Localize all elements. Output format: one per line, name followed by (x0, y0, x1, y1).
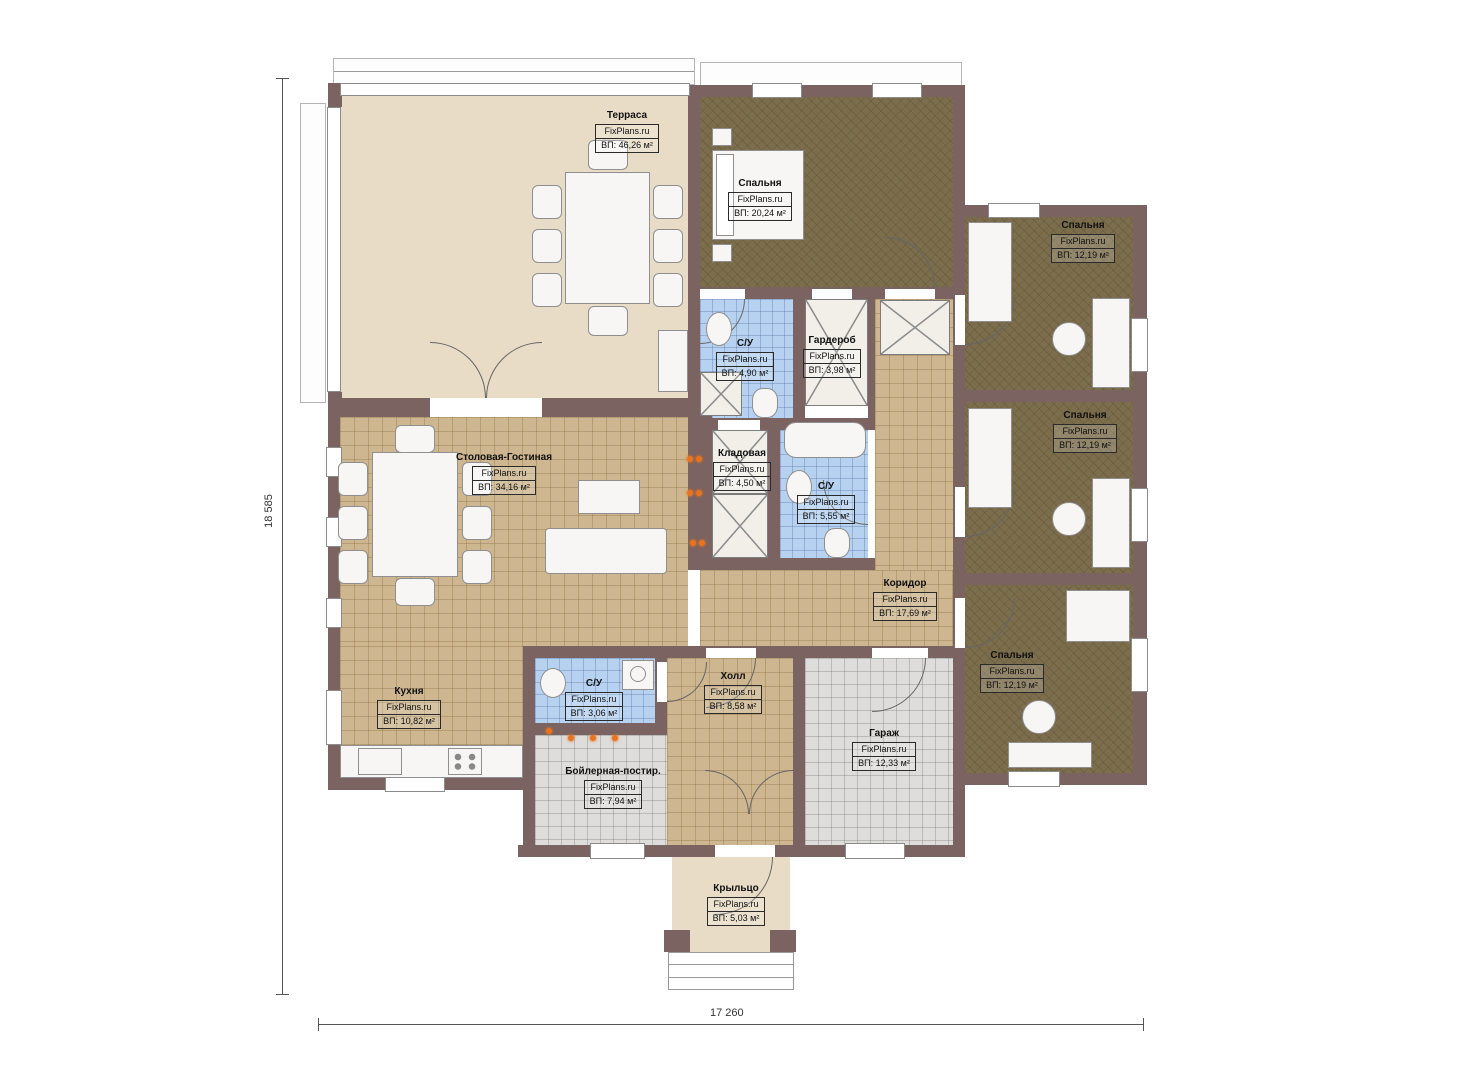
chair (338, 462, 368, 496)
area-label: ВП: 17,69 м² (874, 606, 936, 620)
bed (968, 408, 1012, 508)
stove (448, 748, 482, 775)
wall (793, 646, 805, 857)
brand-label: FixPlans.ru (378, 701, 440, 714)
desk-chair (1052, 502, 1086, 536)
brand-label: FixPlans.ru (596, 125, 658, 138)
chair (532, 229, 562, 263)
chair (653, 273, 683, 307)
room-info-box: FixPlans.ru ВП: 10,82 м² (377, 700, 441, 729)
door-gap (718, 420, 760, 430)
dimension-tick (318, 1018, 319, 1031)
area-label: ВП: 12,19 м² (1052, 248, 1114, 262)
area-label: ВП: 8,58 м² (705, 699, 762, 713)
room-name: Крыльцо (681, 883, 791, 895)
brand-label: FixPlans.ru (981, 665, 1043, 678)
brand-label: FixPlans.ru (708, 898, 765, 911)
window (590, 843, 645, 859)
nightstand (712, 128, 732, 146)
window (1131, 638, 1148, 692)
chair (395, 425, 435, 453)
boiler-burner-dot (546, 728, 552, 734)
room-label-bedroom-mid-right: Спальня FixPlans.ru ВП: 12,19 м² (1030, 410, 1140, 453)
chair (462, 550, 492, 584)
brand-label: FixPlans.ru (729, 193, 791, 206)
room-label-terrace: Терраса FixPlans.ru ВП: 46,26 м² (572, 110, 682, 153)
room-info-box: FixPlans.ru ВП: 8,58 м² (704, 685, 763, 714)
room-info-box: FixPlans.ru ВП: 12,19 м² (980, 664, 1044, 693)
room-label-bathroom-small: С/У FixPlans.ru ВП: 3,06 м² (539, 678, 649, 721)
room-label-garage: Гараж FixPlans.ru ВП: 12,33 м² (829, 728, 939, 771)
porch-step-line (669, 977, 793, 978)
room-label-storage: Кладовая FixPlans.ru ВП: 4,50 м² (687, 448, 797, 491)
chair (338, 550, 368, 584)
fireplace-dot (690, 540, 696, 546)
dimension-line-horizontal (318, 1024, 1143, 1025)
brand-label: FixPlans.ru (853, 743, 915, 756)
terrace-table (565, 172, 650, 304)
room-name: Спальня (957, 650, 1067, 662)
dimension-tick (276, 994, 289, 995)
room-info-box: FixPlans.ru ВП: 12,33 м² (852, 742, 916, 771)
dimension-label-width: 17 260 (710, 1007, 744, 1019)
window (326, 598, 342, 628)
room-label-wardrobe: Гардероб FixPlans.ru ВП: 3,98 м² (777, 335, 887, 378)
chair (338, 506, 368, 540)
area-label: ВП: 3,98 м² (804, 363, 861, 377)
porch-pier-right (770, 930, 796, 952)
chair (395, 578, 435, 606)
roof-eave-top (700, 62, 962, 86)
wall (953, 85, 965, 857)
room-label-bedroom-top-right: Спальня FixPlans.ru ВП: 12,19 м² (1028, 220, 1138, 263)
toilet (824, 528, 850, 558)
room-label-hall: Холл FixPlans.ru ВП: 8,58 м² (678, 671, 788, 714)
porch-steps (668, 952, 794, 990)
room-label-porch: Крыльцо FixPlans.ru ВП: 5,03 м² (681, 883, 791, 926)
brand-label: FixPlans.ru (585, 781, 642, 794)
room-name: Спальня (1028, 220, 1138, 232)
terrace-glass-left (327, 107, 341, 392)
room-info-box: FixPlans.ru ВП: 34,16 м² (472, 466, 536, 495)
chair (588, 306, 628, 336)
dimension-tick (276, 78, 289, 79)
brand-label: FixPlans.ru (1054, 425, 1116, 438)
room-name: Гардероб (777, 335, 887, 347)
room-name: Бойлерная-постир. (558, 766, 668, 778)
brand-label: FixPlans.ru (473, 467, 535, 480)
toilet (752, 388, 778, 418)
room-name: Спальня (1030, 410, 1140, 422)
brand-label: FixPlans.ru (798, 496, 855, 509)
terrace-awning-left (300, 103, 326, 403)
awning-fold-line (334, 71, 694, 72)
area-label: ВП: 12,19 м² (1054, 438, 1116, 452)
nightstand (712, 244, 732, 262)
brand-label: FixPlans.ru (1052, 235, 1114, 248)
wall (953, 390, 1145, 402)
desk (1092, 478, 1130, 568)
room-info-box: FixPlans.ru ВП: 20,24 м² (728, 192, 792, 221)
room-info-box: FixPlans.ru ВП: 46,26 м² (595, 124, 659, 153)
brand-label: FixPlans.ru (804, 350, 861, 363)
window (988, 203, 1040, 218)
terrace-counter (658, 330, 688, 392)
dining-table (372, 452, 458, 577)
room-label-bedroom-bot-right: Спальня FixPlans.ru ВП: 12,19 м² (957, 650, 1067, 693)
brand-label: FixPlans.ru (874, 593, 936, 606)
chair (532, 185, 562, 219)
area-label: ВП: 10,82 м² (378, 714, 440, 728)
wall (700, 558, 875, 570)
door-gap (955, 487, 965, 537)
porch-step-line (669, 964, 793, 965)
dimension-tick (1143, 1018, 1144, 1031)
area-label: ВП: 12,19 м² (981, 678, 1043, 692)
brand-label: FixPlans.ru (714, 463, 771, 476)
wall (688, 85, 965, 97)
area-label: ВП: 7,94 м² (585, 794, 642, 808)
room-info-box: FixPlans.ru ВП: 5,55 м² (797, 495, 856, 524)
bed (1066, 590, 1130, 642)
room-info-box: FixPlans.ru ВП: 3,06 м² (565, 692, 624, 721)
area-label: ВП: 5,03 м² (708, 911, 765, 925)
room-name: Кухня (354, 686, 464, 698)
room-info-box: FixPlans.ru ВП: 4,50 м² (713, 462, 772, 491)
area-label: ВП: 46,26 м² (596, 138, 658, 152)
area-label: ВП: 4,50 м² (714, 476, 771, 490)
room-label-boiler: Бойлерная-постир. FixPlans.ru ВП: 7,94 м… (558, 766, 668, 809)
window (326, 690, 342, 745)
boiler-burner-dot (612, 735, 618, 741)
chair (462, 506, 492, 540)
desk-chair (1052, 322, 1086, 356)
room-name: С/У (539, 678, 649, 690)
desk (1092, 298, 1130, 388)
floor-plan: Терраса FixPlans.ru ВП: 46,26 м² Спальня… (0, 0, 1474, 1080)
room-name: Холл (678, 671, 788, 683)
door-gap (872, 648, 928, 658)
dresser (1008, 742, 1092, 768)
chair (653, 229, 683, 263)
door-gap-porch (715, 845, 775, 857)
area-label: ВП: 5,55 м² (798, 509, 855, 523)
door-gap (706, 648, 756, 658)
storage-shelf (712, 494, 768, 558)
room-info-box: FixPlans.ru ВП: 7,94 м² (584, 780, 643, 809)
terrace-glass-top (340, 83, 690, 96)
window (845, 843, 905, 859)
corridor-closet (880, 300, 950, 355)
room-name: Кладовая (687, 448, 797, 460)
room-info-box: FixPlans.ru ВП: 12,19 м² (1051, 234, 1115, 263)
door-gap-terrace (430, 398, 542, 417)
door-gap (955, 295, 965, 345)
window (752, 83, 802, 98)
area-label: ВП: 12,33 м² (853, 756, 915, 770)
room-label-bedroom-master: Спальня FixPlans.ru ВП: 20,24 м² (705, 178, 815, 221)
room-name: Столовая-Гостиная (449, 452, 559, 464)
boiler-burner-dot (590, 735, 596, 741)
area-label: ВП: 3,06 м² (566, 706, 623, 720)
window (872, 83, 922, 98)
door-gap (700, 289, 745, 299)
boiler-burner-dot (568, 735, 574, 741)
room-info-box: FixPlans.ru ВП: 5,03 м² (707, 897, 766, 926)
area-label: ВП: 34,16 м² (473, 480, 535, 494)
fireplace-dot (699, 540, 705, 546)
kitchen-sink (358, 748, 402, 775)
desk-chair (1022, 700, 1056, 734)
wall (535, 723, 667, 735)
room-info-box: FixPlans.ru ВП: 3,98 м² (803, 349, 862, 378)
window (1008, 771, 1060, 787)
porch-pier-left (664, 930, 690, 952)
room-label-living: Столовая-Гостиная FixPlans.ru ВП: 34,16 … (449, 452, 559, 495)
room-name: Терраса (572, 110, 682, 122)
door-gap (812, 289, 852, 299)
dimension-line-vertical (282, 78, 283, 995)
wall (953, 573, 1145, 585)
bed (968, 222, 1012, 322)
room-info-box: FixPlans.ru ВП: 4,90 м² (716, 352, 775, 381)
window (385, 776, 445, 792)
sofa (545, 528, 667, 574)
brand-label: FixPlans.ru (717, 353, 774, 366)
coffee-table (578, 480, 640, 514)
brand-label: FixPlans.ru (566, 693, 623, 706)
wall (523, 646, 535, 857)
window (1131, 318, 1148, 372)
room-label-kitchen: Кухня FixPlans.ru ВП: 10,82 м² (354, 686, 464, 729)
chair (653, 185, 683, 219)
door-gap (657, 662, 667, 702)
chair (532, 273, 562, 307)
room-label-corridor: Коридор FixPlans.ru ВП: 17,69 м² (850, 578, 960, 621)
brand-label: FixPlans.ru (705, 686, 762, 699)
room-info-box: FixPlans.ru ВП: 17,69 м² (873, 592, 937, 621)
area-label: ВП: 20,24 м² (729, 206, 791, 220)
room-name: Коридор (850, 578, 960, 590)
area-label: ВП: 4,90 м² (717, 366, 774, 380)
door-gap (885, 289, 935, 299)
room-name: Спальня (705, 178, 815, 190)
room-info-box: FixPlans.ru ВП: 12,19 м² (1053, 424, 1117, 453)
window (1131, 488, 1148, 542)
room-name: Гараж (829, 728, 939, 740)
dimension-label-height: 18 585 (263, 494, 275, 528)
